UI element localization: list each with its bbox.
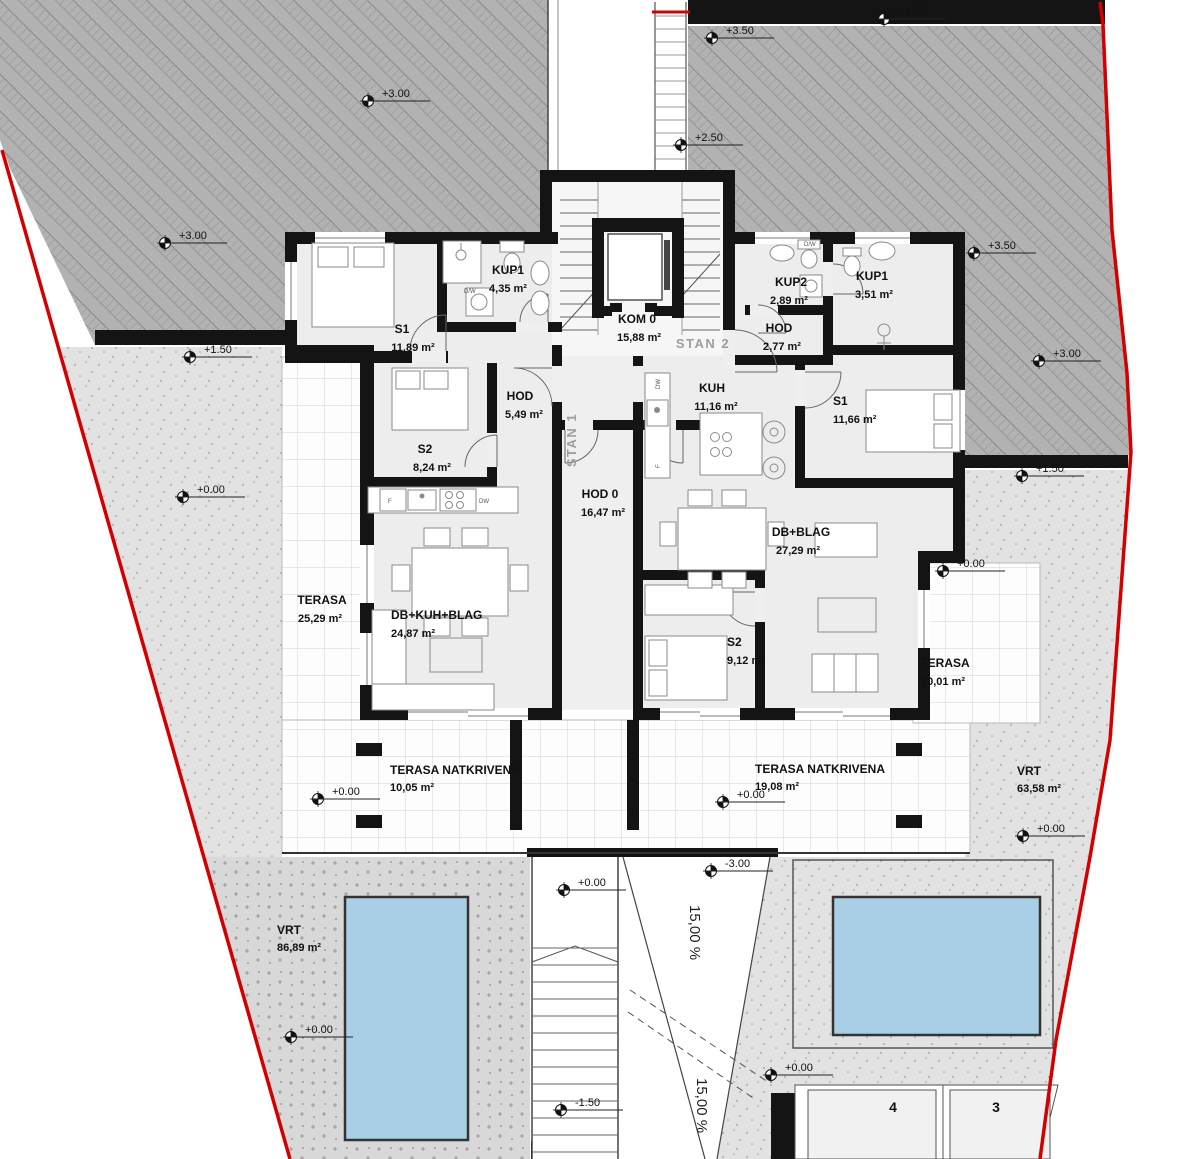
- appliance-label-dw-left: DW: [479, 499, 489, 505]
- ramp-slope-label-1: 15,00 %: [686, 905, 703, 960]
- label-terasa-natkrivena-right: TERASA NATKRIVENA: [755, 762, 885, 776]
- label-terasa-west: TERASA: [297, 593, 347, 607]
- pool-right: [833, 897, 1040, 1035]
- area-kup1-stan2: 3,51 m²: [855, 289, 893, 301]
- svg-text:+3.00: +3.00: [179, 230, 207, 242]
- area-s2-stan1: 8,24 m²: [413, 462, 451, 474]
- svg-text:-1.50: -1.50: [575, 1097, 600, 1109]
- label-s1-stan1: S1: [395, 322, 410, 336]
- pool-left: [345, 897, 468, 1140]
- terrace-south-band: [282, 720, 970, 853]
- label-s1-stan2: S1: [833, 394, 848, 408]
- label-s2-stan2: S2: [727, 635, 742, 649]
- label-dbkuhblag-stan1: DB+KUH+BLAG: [391, 608, 482, 622]
- label-vrt-left: VRT: [277, 923, 302, 937]
- svg-text:+0.00: +0.00: [737, 789, 765, 801]
- area-dbblag-stan2: 27,29 m²: [776, 545, 820, 557]
- area-hod-stan1: 5,49 m²: [505, 409, 543, 421]
- appliance-label-wm-right: D/W: [804, 242, 816, 248]
- label-kup1-stan2: KUP1: [856, 269, 888, 283]
- site-plan: S1 11,89 m² KUP1 4,35 m² KOM 0 15,88 m² …: [0, 0, 1200, 1159]
- label-kom0: KOM 0: [618, 312, 656, 326]
- terrace-east: [913, 563, 1040, 723]
- label-dbblag-stan2: DB+BLAG: [772, 525, 830, 539]
- svg-text:+0.00: +0.00: [785, 1062, 813, 1074]
- top-boundary-wall: [688, 0, 1105, 24]
- area-kom0: 15,88 m²: [617, 332, 661, 344]
- area-vrt-right: 63,58 m²: [1017, 783, 1061, 795]
- area-hod0: 16,47 m²: [581, 507, 625, 519]
- parking-area: [795, 1085, 1058, 1159]
- svg-text:+0.00: +0.00: [957, 558, 985, 570]
- staircase-upper-flight: [548, 0, 688, 170]
- paving-left: [59, 347, 282, 857]
- label-hod-stan2: HOD: [766, 321, 793, 335]
- svg-text:+3.50: +3.50: [726, 25, 754, 37]
- parking-stall-4: [808, 1090, 936, 1159]
- area-kup2-stan2: 2,89 m²: [770, 295, 808, 307]
- area-terasa-east: 10,01 m²: [921, 676, 965, 688]
- svg-text:+0.00: +0.00: [197, 484, 225, 496]
- svg-text:+3.00: +3.00: [1053, 348, 1081, 360]
- zone-label-stan2: STAN 2: [676, 336, 730, 351]
- appliance-label-f-left: F: [388, 499, 392, 505]
- appliance-label-dw-right: DW: [656, 379, 662, 389]
- area-hod-stan2: 2,77 m²: [763, 341, 801, 353]
- svg-text:+3.50: +3.50: [988, 240, 1016, 252]
- svg-text:+0.00: +0.00: [332, 786, 360, 798]
- svg-text:+0.00: +0.00: [578, 877, 606, 889]
- label-vrt-right: VRT: [1017, 764, 1042, 778]
- parking-number-4: 4: [889, 1099, 897, 1115]
- parking-stall-3: [950, 1090, 1050, 1159]
- zone-label-stan1: STAN 1: [564, 413, 579, 467]
- parking-number-3: 3: [992, 1099, 1000, 1115]
- area-kuh-stan2: 11,16 m²: [694, 401, 738, 413]
- area-dbkuhblag-stan1: 24,87 m²: [391, 628, 435, 640]
- svg-text:+0.00: +0.00: [305, 1024, 333, 1036]
- area-s2-stan2: 9,12 m²: [727, 655, 765, 667]
- label-s2-stan1: S2: [418, 442, 433, 456]
- area-vrt-left: 86,89 m²: [277, 942, 321, 954]
- label-hod0: HOD 0: [582, 487, 619, 501]
- area-s1-stan1: 11,89 m²: [391, 342, 435, 354]
- floor-plan-svg: S1 11,89 m² KUP1 4,35 m² KOM 0 15,88 m² …: [0, 0, 1200, 1159]
- svg-text:+3.00: +3.00: [382, 88, 410, 100]
- area-kup1-stan1: 4,35 m²: [489, 283, 527, 295]
- svg-text:+4.50: +4.50: [898, 6, 926, 18]
- label-hod-stan1: HOD: [507, 389, 534, 403]
- svg-text:+2.50: +2.50: [695, 132, 723, 144]
- label-kup2-stan2: KUP2: [775, 275, 807, 289]
- area-terasa-west: 25,29 m²: [298, 613, 342, 625]
- appliance-label-wm-left: D/W: [464, 289, 476, 295]
- svg-text:+0.00: +0.00: [1037, 823, 1065, 835]
- svg-text:-3.00: -3.00: [725, 858, 750, 870]
- exterior-stairs: [532, 857, 618, 1159]
- svg-text:+1.50: +1.50: [1036, 463, 1064, 475]
- terrace-west: [282, 357, 362, 720]
- area-terasa-natkrivena-left: 10,05 m²: [390, 782, 434, 794]
- label-terasa-natkrivena-left: TERASA NATKRIVENA: [390, 763, 520, 777]
- label-terasa-east: TERASA: [920, 656, 970, 670]
- label-kup1-stan1: KUP1: [492, 263, 524, 277]
- svg-text:+1.50: +1.50: [204, 344, 232, 356]
- area-s1-stan2: 11,66 m²: [833, 414, 877, 426]
- appliance-label-f-right: F: [656, 464, 662, 468]
- label-kuh-stan2: KUH: [699, 381, 725, 395]
- ramp-slope-label-2: 15,00 %: [693, 1078, 710, 1133]
